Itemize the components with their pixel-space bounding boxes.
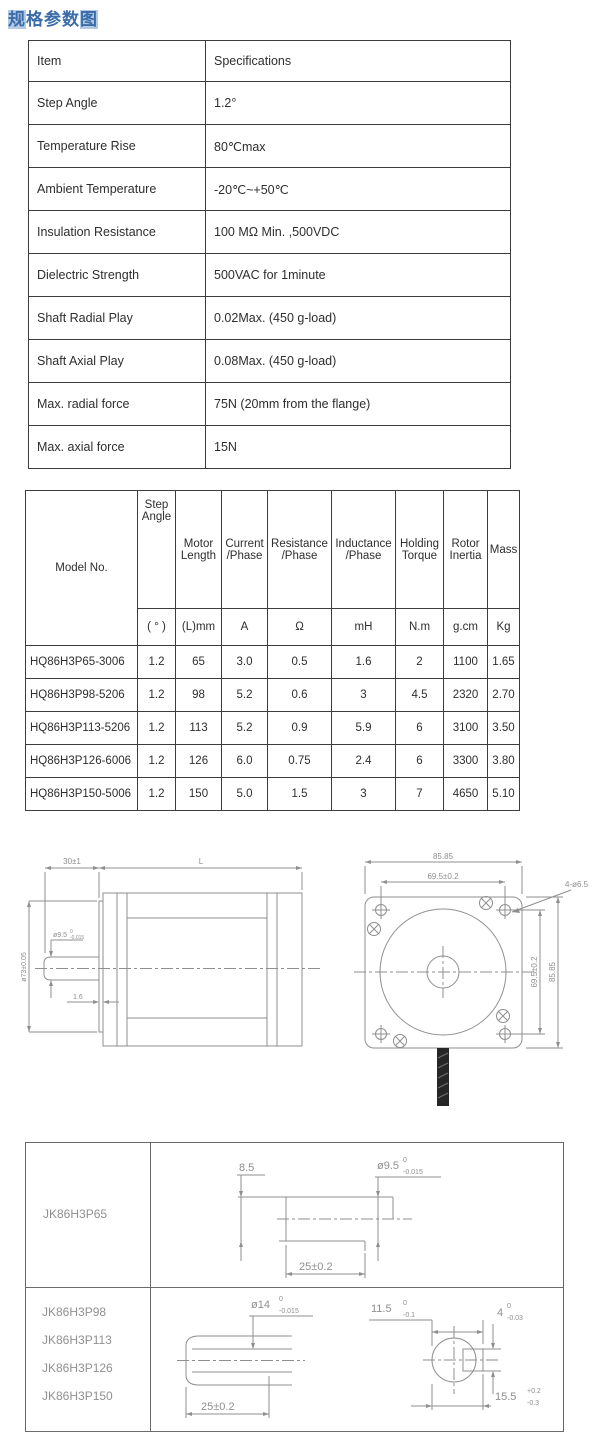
unit-inductance: mH [332, 609, 396, 646]
cell-mass: 1.65 [488, 646, 520, 679]
dim-flat-tol-lower: -0.1 [403, 1312, 415, 1319]
shaft-model-list: JK86H3P98 JK86H3P113 JK86H3P126 JK86H3P1… [26, 1288, 150, 1417]
spec-sheet-page: 规格参数图 Item Specifications Step Angle1.2°… [0, 0, 608, 1443]
cell-current: 6.0 [222, 745, 268, 778]
spec-item-cell: Max. axial force [29, 426, 206, 469]
dim-shaft-tol-lower: -0.015 [403, 1169, 423, 1176]
shaft-model-name: JK86H3P113 [42, 1333, 150, 1361]
spec-value-cell: 100 MΩ Min. ,500VDC [206, 211, 511, 254]
unit-step: ( ° ) [138, 609, 176, 646]
title-highlight-start: 规 [8, 10, 26, 29]
dim-key-width: 4 [497, 1307, 503, 1319]
cell-mass: 3.50 [488, 712, 520, 745]
table-row: HQ86H3P150-5006 1.2 150 5.0 1.5 3 7 4650… [26, 778, 520, 811]
cell-inductance: 1.6 [332, 646, 396, 679]
model-cell: HQ86H3P98-5206 [26, 679, 138, 712]
dim-flange-diameter: ø73±0.05 [21, 952, 28, 982]
cell-inertia: 1100 [444, 646, 488, 679]
spec-item-cell: Shaft Axial Play [29, 340, 206, 383]
spec-value-cell: -20℃~+50℃ [206, 168, 511, 211]
cell-length: 98 [176, 679, 222, 712]
shaft-drawing-cell: ø14 0 -0.015 25±0.2 [151, 1288, 564, 1432]
cell-resistance: 0.75 [268, 745, 332, 778]
spec-value-cell: 75N (20mm from the flange) [206, 383, 511, 426]
table-row: JK86H3P65 8.5 ø9.5 [26, 1143, 564, 1288]
spec-item-cell: Insulation Resistance [29, 211, 206, 254]
title-middle: 格参数 [26, 10, 80, 29]
assembly-screw [480, 897, 493, 910]
cell-step: 1.2 [138, 778, 176, 811]
cell-resistance: 0.9 [268, 712, 332, 745]
table-row: Insulation Resistance100 MΩ Min. ,500VDC [29, 211, 511, 254]
cell-current: 5.0 [222, 778, 268, 811]
shaft-model-name: JK86H3P65 [26, 1143, 150, 1284]
dim-flat-height: 8.5 [239, 1162, 254, 1174]
dim-shaft-diameter: ø14 [251, 1299, 270, 1311]
table-row: Dielectric Strength500VAC for 1minute [29, 254, 511, 297]
shaft-drawing-p65: 8.5 ø9.5 0 -0.015 25±0.2 [151, 1143, 562, 1282]
spec-item-cell: Temperature Rise [29, 125, 206, 168]
cell-resistance: 1.5 [268, 778, 332, 811]
dim-boss-depth: 1.6 [73, 994, 83, 1001]
table-row: Shaft Axial Play0.08Max. (450 g-load) [29, 340, 511, 383]
cell-torque: 2 [396, 646, 444, 679]
table-row: HQ86H3P126-6006 1.2 126 6.0 0.75 2.4 6 3… [26, 745, 520, 778]
col-header-resistance: Resistance /Phase [268, 491, 332, 609]
cell-inertia: 3100 [444, 712, 488, 745]
spec-item-cell: Dielectric Strength [29, 254, 206, 297]
table-row: Shaft Radial Play0.02Max. (450 g-load) [29, 297, 511, 340]
table-row: Max. radial force75N (20mm from the flan… [29, 383, 511, 426]
unit-resistance: Ω [268, 609, 332, 646]
table-row: HQ86H3P113-5206 1.2 113 5.2 0.9 5.9 6 31… [26, 712, 520, 745]
cell-inductance: 2.4 [332, 745, 396, 778]
table-row: JK86H3P98 JK86H3P113 JK86H3P126 JK86H3P1… [26, 1288, 564, 1432]
page-title: 规格参数图 [8, 5, 98, 30]
spec-value-cell: 80℃max [206, 125, 511, 168]
col-header-inertia: Rotor Inertia [444, 491, 488, 609]
spec-header-value: Specifications [206, 41, 511, 82]
motor-body [103, 893, 302, 1046]
assembly-screw [368, 923, 381, 936]
spec-item-cell: Max. radial force [29, 383, 206, 426]
model-cell: HQ86H3P126-6006 [26, 745, 138, 778]
cell-resistance: 0.6 [268, 679, 332, 712]
shaft-drawing-p98-p150: ø14 0 -0.015 25±0.2 [151, 1288, 562, 1426]
dim-flat-tol-upper: 0 [403, 1300, 407, 1307]
cell-length: 126 [176, 745, 222, 778]
col-header-torque: Holding Torque [396, 491, 444, 609]
dim-shaft-length: 25±0.2 [299, 1261, 333, 1273]
cell-inductance: 3 [332, 679, 396, 712]
dim-mounting-holes: 4-ø6.5 [565, 880, 589, 889]
cell-current: 3.0 [222, 646, 268, 679]
col-header-mass: Mass [488, 491, 520, 609]
cell-torque: 6 [396, 712, 444, 745]
cell-current: 5.2 [222, 712, 268, 745]
pilot-boss [99, 901, 103, 1032]
cell-length: 65 [176, 646, 222, 679]
cell-mass: 2.70 [488, 679, 520, 712]
spec-item-cell: Ambient Temperature [29, 168, 206, 211]
col-header-current: Current /Phase [222, 491, 268, 609]
dim-shaft-extension: 30±1 [63, 857, 81, 866]
dim-total-tol-upper: +0.2 [527, 1388, 541, 1395]
spec-value-cell: 0.08Max. (450 g-load) [206, 340, 511, 383]
dim-shaft-tol-lower: -0.015 [279, 1308, 299, 1315]
unit-length: (L)mm [176, 609, 222, 646]
dim-flange-width: 85.85 [433, 852, 454, 861]
shaft-model-cell: JK86H3P65 [26, 1143, 151, 1288]
model-cell: HQ86H3P65-3006 [26, 646, 138, 679]
dim-motor-length: L [199, 857, 204, 866]
spec-value-cell: 500VAC for 1minute [206, 254, 511, 297]
assembly-screw [497, 1010, 510, 1023]
dim-key-tol-upper: 0 [507, 1303, 511, 1310]
title-highlight-end: 图 [80, 10, 98, 29]
specifications-table: Item Specifications Step Angle1.2° Tempe… [28, 40, 511, 469]
dim-flange-height: 85.85 [548, 961, 557, 982]
table-row: Model No. Step Angle Motor Length Curren… [26, 491, 520, 609]
dim-shaft-diameter: ø9.5 [377, 1160, 399, 1172]
dim-shaft-tol-lower: -0.015 [70, 935, 84, 941]
cell-inertia: 4650 [444, 778, 488, 811]
dim-key-tol-lower: -0.03 [507, 1315, 523, 1322]
spec-item-cell: Shaft Radial Play [29, 297, 206, 340]
col-header-motor-length: Motor Length [176, 491, 222, 609]
cell-torque: 7 [396, 778, 444, 811]
shaft-drawing-cell: 8.5 ø9.5 0 -0.015 25±0.2 [151, 1143, 564, 1288]
table-row: HQ86H3P65-3006 1.2 65 3.0 0.5 1.6 2 1100… [26, 646, 520, 679]
cell-step: 1.2 [138, 712, 176, 745]
spec-header-item: Item [29, 41, 206, 82]
cell-resistance: 0.5 [268, 646, 332, 679]
cell-torque: 4.5 [396, 679, 444, 712]
col-header-model: Model No. [26, 491, 138, 646]
mounting-hole [372, 1025, 390, 1043]
dim-hole-spacing-h: 69.5±0.2 [427, 872, 459, 881]
dim-shaft-tol-upper: 0 [403, 1157, 407, 1164]
cell-length: 150 [176, 778, 222, 811]
model-cell: HQ86H3P150-5006 [26, 778, 138, 811]
shaft-model-cell: JK86H3P98 JK86H3P113 JK86H3P126 JK86H3P1… [26, 1288, 151, 1432]
mounting-hole [372, 901, 390, 919]
cell-step: 1.2 [138, 745, 176, 778]
shaft-detail-table: JK86H3P65 8.5 ø9.5 [25, 1142, 564, 1432]
shaft-model-name: JK86H3P126 [42, 1361, 150, 1389]
table-row: Temperature Rise80℃max [29, 125, 511, 168]
shaft-model-name: JK86H3P98 [42, 1305, 150, 1333]
cell-inertia: 2320 [444, 679, 488, 712]
unit-torque: N.m [396, 609, 444, 646]
dim-hole-spacing-v: 69.5±0.2 [530, 956, 539, 988]
col-header-step-angle: Step Angle [138, 491, 176, 609]
unit-mass: Kg [488, 609, 520, 646]
table-row: HQ86H3P98-5206 1.2 98 5.2 0.6 3 4.5 2320… [26, 679, 520, 712]
cell-step: 1.2 [138, 679, 176, 712]
model-parameters-table: Model No. Step Angle Motor Length Curren… [25, 490, 520, 811]
spec-value-cell: 0.02Max. (450 g-load) [206, 297, 511, 340]
table-row: Item Specifications [29, 41, 511, 82]
table-row: Max. axial force15N [29, 426, 511, 469]
motor-side-view-drawing: 30±1 L ø73±0.05 ø9.5 0 -0.015 1.6 [15, 850, 335, 1120]
spec-value-cell: 1.2° [206, 82, 511, 125]
cell-mass: 5.10 [488, 778, 520, 811]
cell-length: 113 [176, 712, 222, 745]
shaft-model-name: JK86H3P150 [42, 1389, 150, 1417]
cell-current: 5.2 [222, 679, 268, 712]
cell-inductance: 5.9 [332, 712, 396, 745]
col-header-inductance: Inductance /Phase [332, 491, 396, 609]
dim-shaft-diameter: ø9.5 [53, 932, 67, 939]
cell-inductance: 3 [332, 778, 396, 811]
cell-mass: 3.80 [488, 745, 520, 778]
cell-step: 1.2 [138, 646, 176, 679]
dim-total-tol-lower: -0.3 [527, 1400, 539, 1407]
dim-shaft-length: 25±0.2 [201, 1401, 235, 1413]
dim-flat-length: 11.5 [371, 1303, 392, 1315]
table-row: Ambient Temperature-20℃~+50℃ [29, 168, 511, 211]
spec-item-cell: Step Angle [29, 82, 206, 125]
dim-shaft-tol-upper: 0 [279, 1296, 283, 1303]
model-cell: HQ86H3P113-5206 [26, 712, 138, 745]
assembly-screw [394, 1035, 407, 1048]
dim-total-height: 15.5 [495, 1391, 516, 1403]
motor-front-view-drawing: 85.85 69.5±0.2 4-ø6.5 69.5±0.2 85.85 [340, 850, 608, 1120]
unit-inertia: g.cm [444, 609, 488, 646]
unit-current: A [222, 609, 268, 646]
cell-torque: 6 [396, 745, 444, 778]
cell-inertia: 3300 [444, 745, 488, 778]
table-row: Step Angle1.2° [29, 82, 511, 125]
spec-value-cell: 15N [206, 426, 511, 469]
